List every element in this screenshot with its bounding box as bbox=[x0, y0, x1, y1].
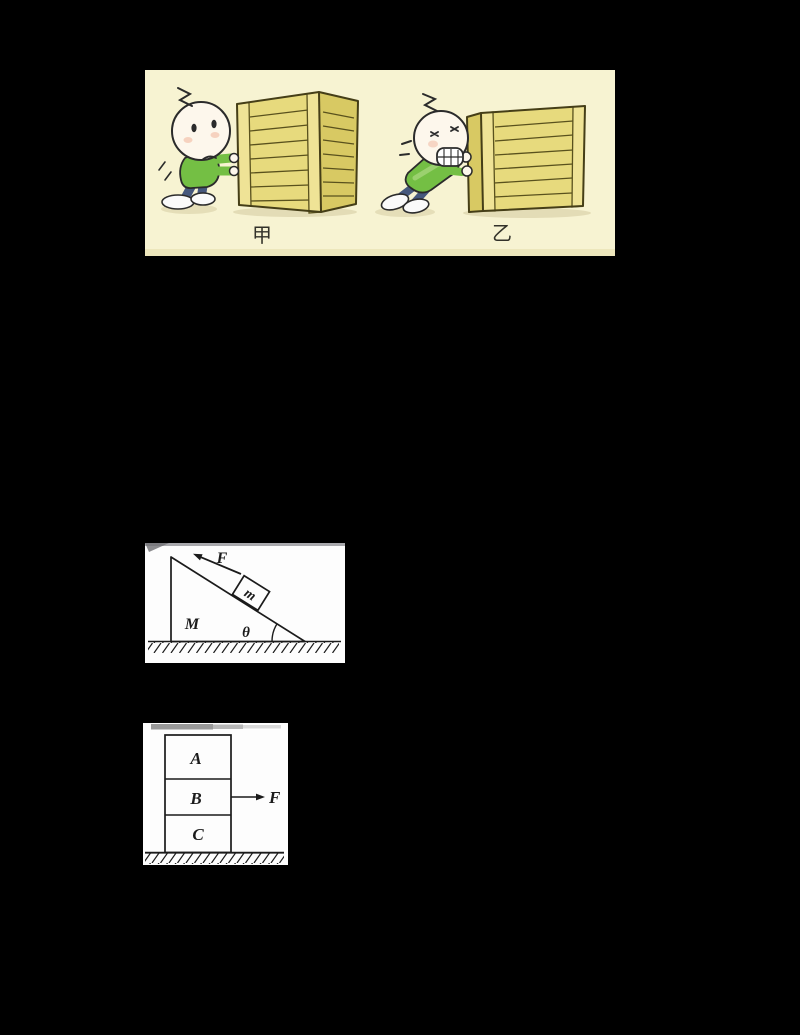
block-B-label: B bbox=[189, 789, 201, 808]
person1-shoe-left bbox=[162, 195, 194, 209]
document-page: 甲 bbox=[0, 0, 800, 1035]
person1-hand-lower bbox=[230, 167, 239, 176]
person1-eye-right bbox=[211, 120, 216, 128]
scan-smudge-1 bbox=[151, 724, 213, 730]
person1-head bbox=[172, 102, 230, 160]
figure-pushing-crates: 甲 bbox=[145, 70, 615, 256]
person2-hand-lower bbox=[462, 166, 472, 176]
wooden-crate-left bbox=[237, 92, 358, 213]
scene-yi-label: 乙 bbox=[492, 221, 512, 245]
angle-theta-label: θ bbox=[242, 625, 250, 641]
scan-smudge-2 bbox=[213, 725, 243, 730]
block-C-label: C bbox=[192, 825, 204, 844]
figure-stacked-blocks: A B C F bbox=[143, 723, 288, 865]
force-F-label: F bbox=[216, 550, 228, 567]
cartoon-bottom-shade bbox=[145, 249, 615, 256]
stacked-blocks-diagram: A B C F bbox=[143, 723, 288, 865]
scan-artifact-band bbox=[145, 543, 345, 546]
person2-cheek bbox=[428, 141, 438, 148]
person1-cheek-left bbox=[184, 137, 193, 143]
scan-smudge-3 bbox=[243, 725, 281, 729]
pushing-crates-illustration: 甲 bbox=[145, 70, 615, 256]
figure-incline-diagram: m F M θ bbox=[145, 543, 345, 663]
person1-cheek-right bbox=[211, 132, 220, 138]
scene-jia-label: 甲 bbox=[252, 223, 272, 247]
person1-hand-upper bbox=[230, 154, 239, 163]
ground-hatching bbox=[145, 854, 284, 865]
ground-hatching bbox=[148, 642, 339, 653]
incline-diagram: m F M θ bbox=[145, 543, 345, 663]
person1-eye-left bbox=[191, 124, 196, 132]
wooden-crate-right bbox=[467, 106, 585, 212]
block-A-label: A bbox=[189, 749, 201, 768]
force-F-label: F bbox=[268, 788, 281, 807]
crate1-side-face bbox=[319, 92, 358, 212]
wedge-M-label: M bbox=[184, 616, 200, 633]
person1-shoe-right bbox=[191, 193, 215, 205]
